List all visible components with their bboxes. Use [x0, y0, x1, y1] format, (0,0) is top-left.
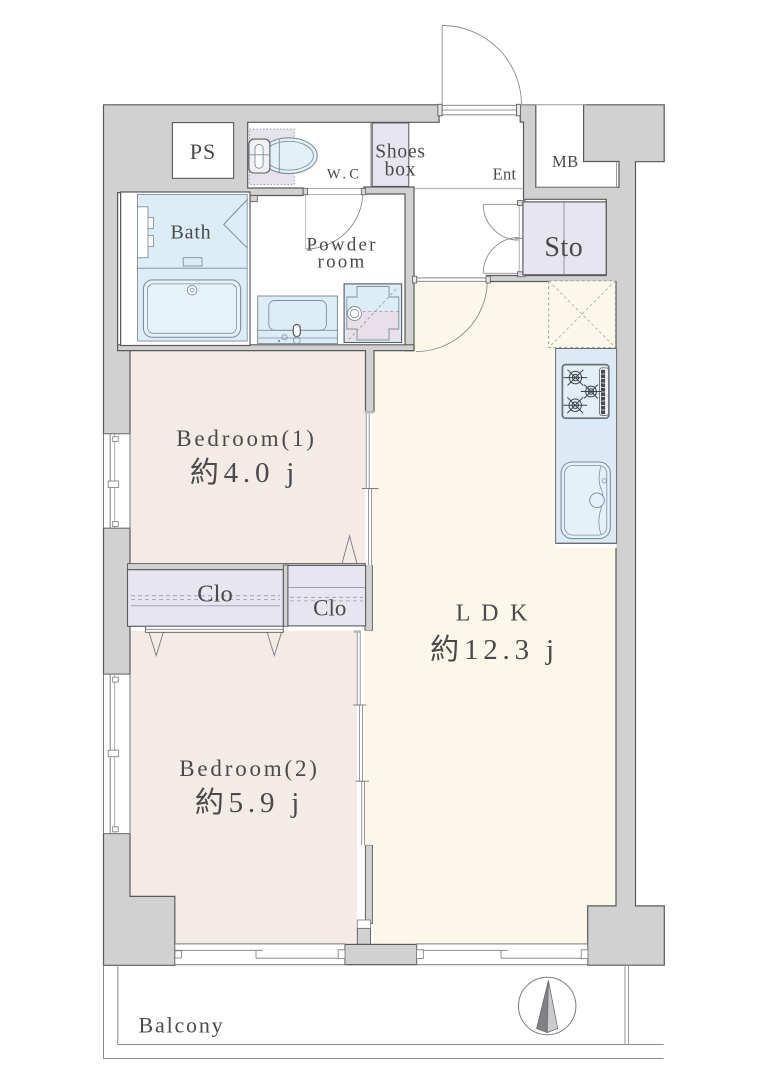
svg-text:Ent: Ent — [493, 165, 517, 184]
svg-text:Bedroom(2): Bedroom(2) — [179, 756, 319, 781]
svg-text:約4.0 j: 約4.0 j — [190, 456, 299, 489]
svg-text:Balcony: Balcony — [139, 1013, 225, 1038]
svg-text:L D K: L D K — [456, 601, 530, 627]
svg-text:Clo: Clo — [197, 581, 232, 608]
svg-text:Bedroom(1): Bedroom(1) — [176, 426, 316, 451]
svg-text:PS: PS — [190, 139, 216, 164]
svg-text:Bath: Bath — [171, 222, 212, 244]
svg-text:Sto: Sto — [544, 232, 583, 263]
svg-text:約12.3 j: 約12.3 j — [430, 633, 559, 666]
svg-text:room: room — [318, 252, 367, 273]
svg-text:box: box — [385, 160, 417, 181]
svg-text:Clo: Clo — [313, 596, 346, 621]
svg-text:W.C: W.C — [327, 167, 362, 183]
svg-text:約5.9 j: 約5.9 j — [195, 786, 304, 819]
svg-text:MB: MB — [552, 152, 579, 171]
